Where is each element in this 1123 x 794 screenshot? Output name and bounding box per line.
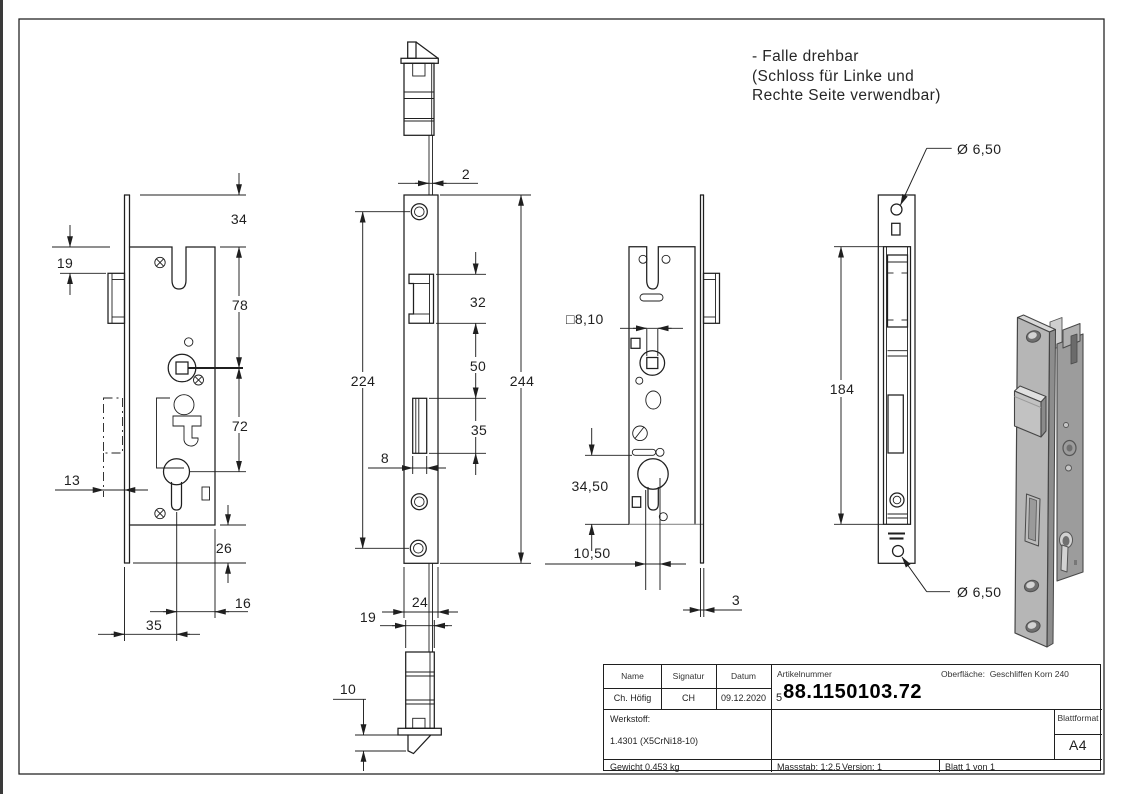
artikelnummer-label: Artikelnummer <box>777 669 832 679</box>
dim-label-34: 34 <box>231 211 247 227</box>
hidden-line-rect <box>104 398 123 453</box>
dim-label-224: 224 <box>351 373 376 389</box>
drawing-sheet: - Falle drehbar (Schloss für Linke und R… <box>0 0 1123 794</box>
blattformat-value: A4 <box>1054 737 1102 753</box>
sheet-border <box>19 19 1104 774</box>
dim-label-1050: 10,50 <box>573 545 610 561</box>
werkstoff-value: 1.4301 (X5CrNi18-10) <box>610 736 698 746</box>
drawing-note: - Falle drehbar (Schloss für Linke und R… <box>752 47 941 106</box>
deadbolt-cutout <box>413 398 427 453</box>
follower-hole-back <box>640 351 665 376</box>
euro-cylinder-hole <box>164 459 190 510</box>
datum-value: 09.12.2020 <box>716 693 771 703</box>
name-value: Ch. Höfig <box>604 693 661 703</box>
werkstoff-label: Werkstoff: <box>610 714 650 724</box>
signatur-value: CH <box>661 693 716 703</box>
dim-label-72: 72 <box>232 418 248 434</box>
dim-label-244: 244 <box>510 373 535 389</box>
note-line-3: Rechte Seite verwendbar) <box>752 86 941 106</box>
screw-icon <box>155 508 165 518</box>
view4-rear-view <box>878 195 915 563</box>
view2-bottom-detail <box>398 563 441 753</box>
artikelnummer-value: 588.1150103.72 <box>776 681 922 704</box>
dim-label-26: 26 <box>216 540 232 556</box>
dim-label-184: 184 <box>830 381 855 397</box>
view1-dimensions: 34 19 78 72 13 26 16 <box>52 173 251 641</box>
version: Version: 1 <box>842 762 882 772</box>
dim-label-13: 13 <box>64 472 80 488</box>
deadbolt-slot-3d <box>1025 494 1040 546</box>
view1-section-view <box>104 195 244 563</box>
gewicht: Gewicht 0.453 kg <box>610 762 680 772</box>
blattformat-label: Blattformat <box>1054 713 1102 723</box>
dim-label-3450: 34,50 <box>571 478 608 494</box>
euro-cylinder-hole-back <box>638 459 668 510</box>
blatt: Blatt 1 von 1 <box>945 762 995 772</box>
dim-label-35: 35 <box>146 617 162 633</box>
massstab: Massstab: 1:2.5 <box>777 762 841 772</box>
signatur-label: Signatur <box>661 671 716 681</box>
name-label: Name <box>604 671 661 681</box>
dim-label-8: 8 <box>381 450 389 466</box>
view4-dimensions: 184 Ø 6,50 Ø 6,50 <box>827 141 1001 600</box>
dim-label-50: 50 <box>470 358 486 374</box>
view2-front-view <box>404 195 438 563</box>
screw-icon <box>155 257 165 267</box>
isometric-render <box>1015 315 1084 647</box>
dim-label-10: 10 <box>340 681 356 697</box>
note-line-1: - Falle drehbar <box>752 47 941 67</box>
dim-label-3: 3 <box>732 592 740 608</box>
window-left-edge <box>0 0 3 794</box>
deadbolt-rear <box>888 395 903 453</box>
dim-label-16: 16 <box>235 595 251 611</box>
oberflaeche: Oberfläche: Geschliffen Korn 240 <box>941 669 1069 679</box>
datum-label: Datum <box>716 671 771 681</box>
dim-label-diam650-top: Ø 6,50 <box>957 141 1001 157</box>
title-block: Name Signatur Datum Ch. Höfig CH 09.12.2… <box>603 664 1101 771</box>
dim-label-19: 19 <box>57 255 73 271</box>
view3-back-view <box>629 195 720 563</box>
view2-top-detail <box>401 42 438 195</box>
dim-label-2: 2 <box>462 166 470 182</box>
dim-label-35b: 35 <box>471 422 487 438</box>
view2-dimensions: 2 224 244 32 50 35 <box>333 166 537 771</box>
dim-label-78: 78 <box>232 297 248 313</box>
dim-label-19b: 19 <box>360 609 376 625</box>
view3-dimensions: □8,10 34,50 10,50 3 <box>545 311 742 617</box>
artikelnummer-prefix: 5 <box>776 692 782 704</box>
dim-label-diam650-bottom: Ø 6,50 <box>957 584 1001 600</box>
screw-icon <box>194 375 204 385</box>
note-line-2: (Schloss für Linke und <box>752 67 941 87</box>
dim-label-24: 24 <box>412 594 428 610</box>
dim-label-32: 32 <box>470 294 486 310</box>
dim-label-square810: □8,10 <box>566 311 604 327</box>
